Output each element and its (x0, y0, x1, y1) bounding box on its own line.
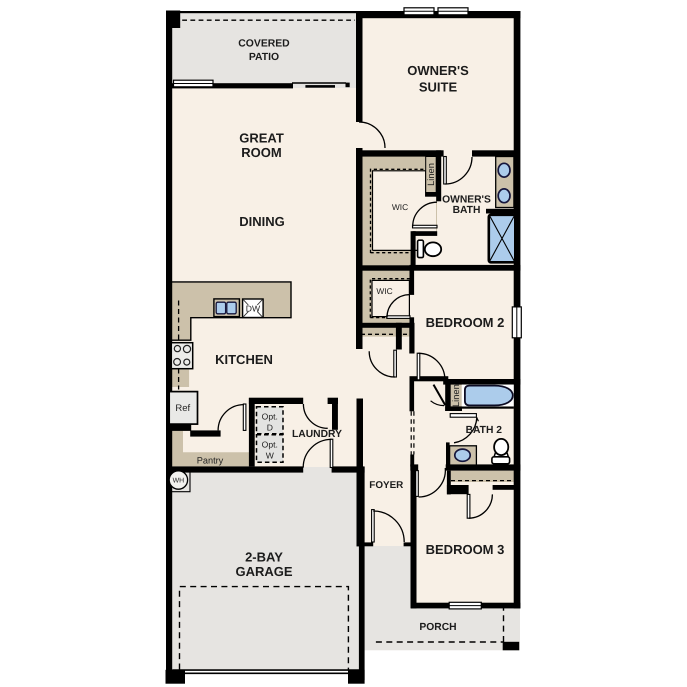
svg-text:BEDROOM 2: BEDROOM 2 (426, 315, 505, 330)
svg-text:GARAGE: GARAGE (235, 564, 292, 579)
svg-text:D: D (267, 423, 273, 433)
svg-text:PORCH: PORCH (419, 622, 456, 633)
svg-text:Linen: Linen (426, 163, 436, 186)
svg-text:W: W (266, 451, 275, 461)
svg-text:WIC: WIC (376, 286, 392, 296)
svg-text:2-BAY: 2-BAY (245, 549, 283, 564)
svg-text:ROOM: ROOM (241, 145, 281, 160)
svg-text:BEDROOM 3: BEDROOM 3 (426, 542, 505, 557)
svg-text:BATH: BATH (453, 205, 481, 216)
svg-text:COVERED: COVERED (238, 38, 290, 49)
svg-text:SUITE: SUITE (419, 79, 458, 94)
svg-text:DINING: DINING (239, 214, 285, 229)
svg-text:Ref: Ref (175, 403, 190, 414)
svg-text:LAUNDRY: LAUNDRY (292, 429, 342, 440)
svg-text:OWNER'S: OWNER'S (442, 195, 491, 206)
svg-text:FOYER: FOYER (369, 480, 403, 491)
svg-text:BATH 2: BATH 2 (466, 425, 503, 436)
svg-text:GREAT: GREAT (239, 130, 284, 145)
svg-text:KITCHEN: KITCHEN (215, 352, 273, 367)
svg-text:DW: DW (246, 304, 261, 314)
svg-text:WH: WH (173, 478, 185, 485)
svg-text:OWNER'S: OWNER'S (407, 63, 469, 78)
svg-text:Opt.: Opt. (262, 411, 278, 421)
svg-text:WIC: WIC (392, 202, 408, 212)
svg-text:PATIO: PATIO (249, 52, 279, 63)
svg-text:Linen: Linen (451, 384, 461, 407)
svg-text:Pantry: Pantry (197, 456, 224, 466)
svg-text:Opt.: Opt. (262, 439, 278, 449)
